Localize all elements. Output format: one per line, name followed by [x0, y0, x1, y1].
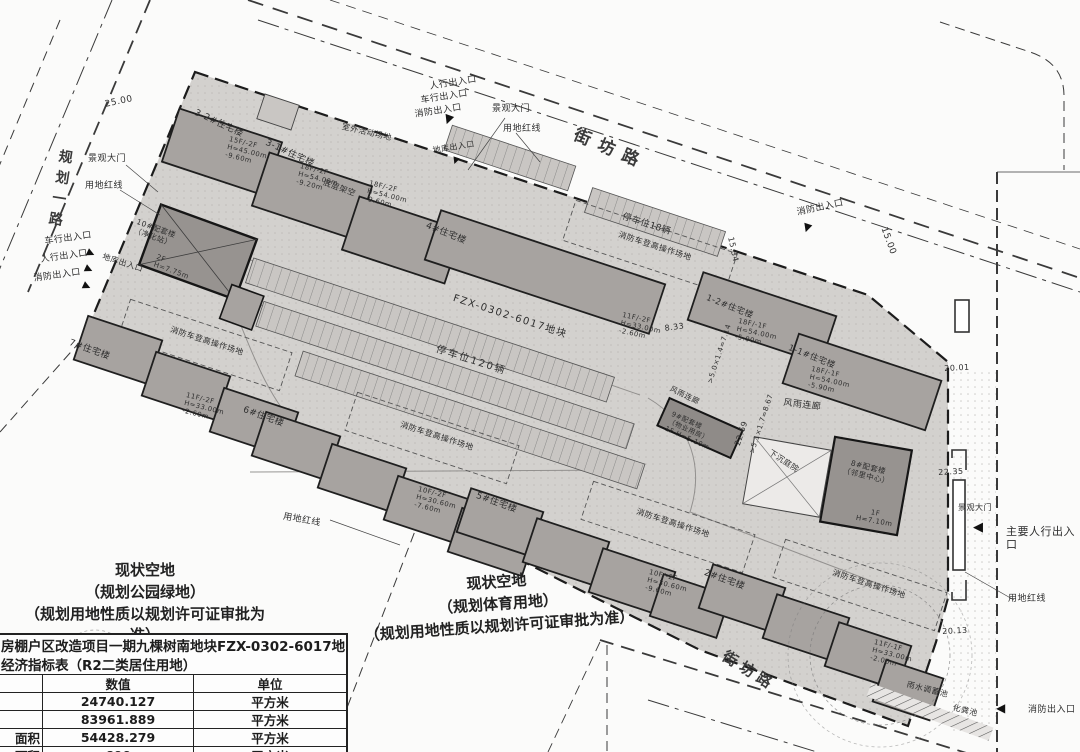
table-row: 面积 54428.279 平方米 [0, 729, 346, 747]
red-line-left: 用地红线 [85, 181, 123, 191]
landscape-gate-left: 景观大门 [88, 154, 126, 164]
dim-2235: 22.35 [938, 467, 964, 478]
table-cell-label [0, 711, 43, 728]
entrance-arrow-bottomright: ◀ [996, 701, 1005, 715]
table-cell-value: 54428.279 [43, 729, 194, 746]
table-header-label [0, 675, 43, 692]
table-cell-value: 24740.127 [43, 693, 194, 710]
table-row: 面积 600 平方米 [0, 747, 346, 752]
entrance-arrow-main: ◀ [973, 520, 983, 535]
table-header-unit: 单位 [194, 675, 346, 692]
entrance-main-pedestrian: 主要人行出入口 [1006, 526, 1080, 551]
dim-2013: 20.13 [942, 626, 968, 637]
landscape-gate-right: 景观大门 [958, 503, 992, 512]
red-line-right: 用地红线 [1008, 594, 1046, 604]
table-cell-label: 面积 [0, 747, 43, 752]
site-plan: 街坊路 街坊路 规划一路 人行出入口 车行出入口 消防出入口 ▼ 地库出入口 ▼… [0, 0, 1080, 752]
table-header-row: 数值 单位 [0, 675, 346, 693]
table-header-value: 数值 [43, 675, 194, 692]
table-title-line2: 经济指标表（R2二类居住用地） [0, 654, 346, 675]
entrance-fire-bottomright: 消防出入口 [1028, 705, 1076, 715]
table-title-line1: 房棚户区改造项目一期九棵树南地块FZX-0302-6017地 [0, 635, 346, 654]
economic-indicator-table: 房棚户区改造项目一期九棵树南地块FZX-0302-6017地 经济指标表（R2二… [0, 633, 348, 752]
table-cell-value: 600 [43, 747, 194, 752]
table-row: 83961.889 平方米 [0, 711, 346, 729]
dim-2001: 20.01 [944, 363, 970, 374]
table-cell-unit: 平方米 [194, 711, 346, 728]
table-cell-value: 83961.889 [43, 711, 194, 728]
table-cell-label [0, 693, 43, 710]
table-row: 24740.127 平方米 [0, 693, 346, 711]
table-cell-label: 面积 [0, 729, 43, 746]
landscape-gate-top: 景观大门 [492, 104, 530, 114]
red-line-top: 用地红线 [503, 124, 541, 134]
table-cell-unit: 平方米 [194, 729, 346, 746]
table-cell-unit: 平方米 [194, 693, 346, 710]
table-cell-unit: 平方米 [194, 747, 346, 752]
